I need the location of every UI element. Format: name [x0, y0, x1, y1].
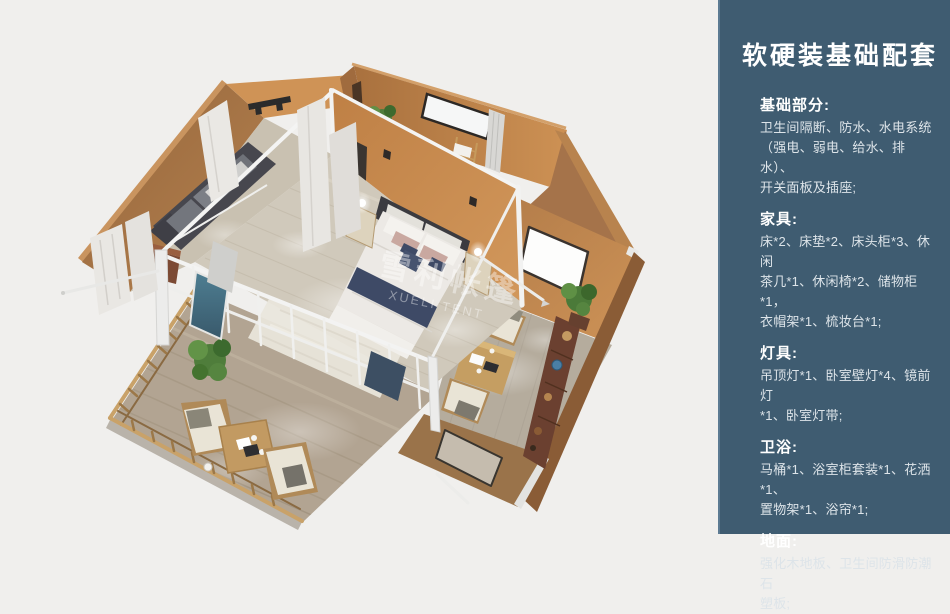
floor-plan-svg: 雪利帐篷 XUELI TENT	[0, 0, 718, 534]
section-heading: 地面:	[760, 533, 936, 551]
section-heading: 灯具:	[760, 345, 936, 363]
section-body: 床*2、床垫*2、床头柜*3、休闲 茶几*1、休闲椅*2、储物柜*1， 衣帽架*…	[760, 232, 936, 332]
spec-panel: 软硬装基础配套 基础部分: 卫生间隔断、防水、水电系统 （强电、弱电、给水、排水…	[718, 0, 950, 534]
section-heading: 卫浴:	[760, 439, 936, 457]
section-basics: 基础部分: 卫生间隔断、防水、水电系统 （强电、弱电、给水、排水）、 开关面板及…	[760, 97, 936, 198]
section-heading: 基础部分:	[760, 97, 936, 115]
section-body: 卫生间隔断、防水、水电系统 （强电、弱电、给水、排水）、 开关面板及插座;	[760, 118, 936, 198]
section-bathroom: 卫浴: 马桶*1、浴室柜套装*1、花洒*1、 置物架*1、浴帘*1;	[760, 439, 936, 520]
section-heading: 家具:	[760, 211, 936, 229]
panel-title: 软硬装基础配套	[742, 42, 936, 71]
section-body: 吊顶灯*1、卧室壁灯*4、镜前灯 *1、卧室灯带;	[760, 366, 936, 426]
floor-plan-render: 雪利帐篷 XUELI TENT	[0, 0, 718, 534]
section-flooring: 地面: 强化木地板、卫生间防滑防潮石 塑板;	[760, 533, 936, 614]
section-furniture: 家具: 床*2、床垫*2、床头柜*3、休闲 茶几*1、休闲椅*2、储物柜*1， …	[760, 211, 936, 332]
section-body: 强化木地板、卫生间防滑防潮石 塑板;	[760, 554, 936, 614]
kettle	[204, 463, 212, 471]
frame-leg-west	[155, 250, 169, 345]
deck-plant	[188, 339, 231, 381]
section-body: 马桶*1、浴室柜套装*1、花洒*1、 置物架*1、浴帘*1;	[760, 460, 936, 520]
section-lighting: 灯具: 吊顶灯*1、卧室壁灯*4、镜前灯 *1、卧室灯带;	[760, 345, 936, 426]
